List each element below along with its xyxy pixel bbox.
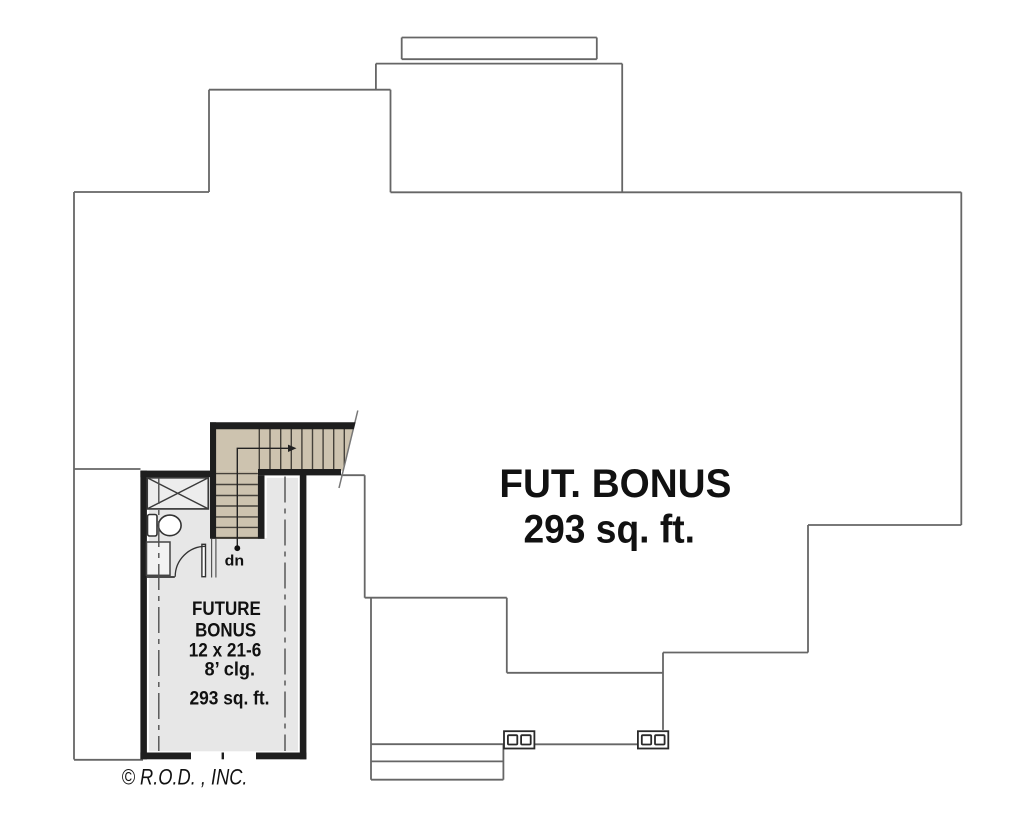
svg-text:FUTURE: FUTURE <box>192 599 261 620</box>
svg-text:BONUS: BONUS <box>195 620 256 641</box>
svg-text:dn: dn <box>225 553 245 570</box>
svg-text:12 x 21-6: 12 x 21-6 <box>189 640 262 661</box>
svg-text:© R.O.D. , INC.: © R.O.D. , INC. <box>122 765 248 790</box>
svg-text:8’ clg.: 8’ clg. <box>205 660 256 681</box>
svg-text:293 sq. ft.: 293 sq. ft. <box>190 689 270 710</box>
svg-text:FUT. BONUS: FUT. BONUS <box>499 462 731 506</box>
svg-text:293 sq. ft.: 293 sq. ft. <box>523 508 695 552</box>
